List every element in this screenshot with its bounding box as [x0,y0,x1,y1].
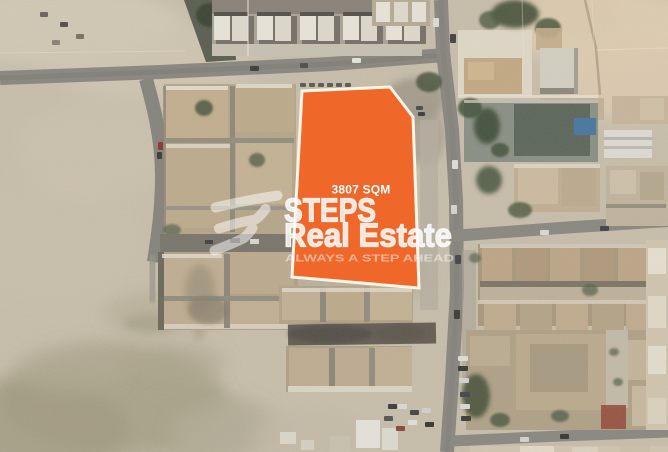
svg-text:Real Estate: Real Estate [284,218,452,255]
svg-text:ALWAYS A STEP AHEAD: ALWAYS A STEP AHEAD [285,254,454,265]
